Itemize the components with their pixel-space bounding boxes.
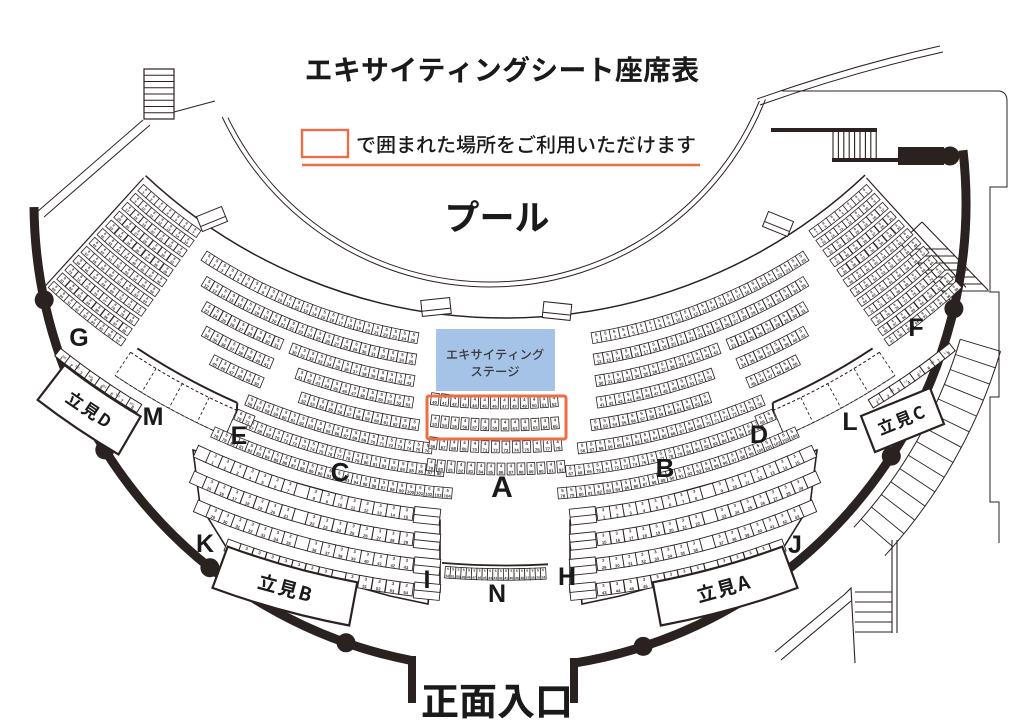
svg-text:100: 100 <box>407 489 415 495</box>
svg-text:5: 5 <box>526 569 528 573</box>
svg-text:5: 5 <box>484 569 486 573</box>
svg-text:48: 48 <box>467 575 471 579</box>
svg-text:76: 76 <box>535 447 541 452</box>
svg-text:73: 73 <box>504 448 509 453</box>
svg-text:46: 46 <box>477 576 481 580</box>
svg-text:B: B <box>656 453 675 483</box>
svg-text:40: 40 <box>510 576 514 580</box>
svg-text:88: 88 <box>519 470 525 475</box>
svg-text:102: 102 <box>425 492 433 498</box>
svg-text:5: 5 <box>489 569 491 573</box>
svg-text:101: 101 <box>416 490 424 496</box>
svg-text:5: 5 <box>542 568 544 572</box>
svg-text:L: L <box>842 408 857 436</box>
svg-text:5: 5 <box>473 568 475 572</box>
svg-text:5: 5 <box>510 569 512 573</box>
svg-text:F: F <box>908 314 923 342</box>
svg-text:51: 51 <box>451 574 455 578</box>
svg-text:D: D <box>750 421 768 449</box>
svg-text:5: 5 <box>468 568 470 572</box>
svg-text:37: 37 <box>526 576 530 580</box>
svg-text:46: 46 <box>492 404 497 409</box>
svg-text:5: 5 <box>463 568 465 572</box>
svg-text:35: 35 <box>536 576 540 580</box>
svg-text:J: J <box>788 531 802 559</box>
svg-text:5: 5 <box>495 569 497 573</box>
svg-text:38: 38 <box>520 576 524 580</box>
svg-text:5: 5 <box>516 569 518 573</box>
svg-text:N: N <box>488 580 506 608</box>
svg-text:M: M <box>143 403 164 431</box>
svg-text:5: 5 <box>452 567 454 571</box>
svg-text:39: 39 <box>515 576 519 580</box>
svg-text:A: A <box>491 471 513 504</box>
svg-text:5: 5 <box>537 568 539 572</box>
svg-text:47: 47 <box>472 576 476 580</box>
svg-text:44: 44 <box>472 403 478 408</box>
svg-text:75: 75 <box>524 447 530 452</box>
svg-text:48: 48 <box>512 404 517 409</box>
svg-text:50: 50 <box>532 403 538 408</box>
svg-text:63: 63 <box>533 425 539 430</box>
svg-text:103: 103 <box>434 492 442 498</box>
svg-text:50: 50 <box>456 575 460 579</box>
svg-text:49: 49 <box>522 404 528 409</box>
svg-text:45: 45 <box>482 404 488 409</box>
svg-text:61: 61 <box>513 426 518 431</box>
svg-text:70: 70 <box>472 447 478 452</box>
svg-text:72: 72 <box>493 448 498 453</box>
svg-text:C: C <box>331 457 350 487</box>
svg-text:5: 5 <box>500 569 502 573</box>
svg-text:71: 71 <box>482 448 488 453</box>
svg-text:5: 5 <box>521 569 523 573</box>
svg-text:K: K <box>196 530 214 558</box>
svg-text:60: 60 <box>503 426 508 431</box>
svg-text:36: 36 <box>531 576 535 580</box>
svg-text:49: 49 <box>461 575 465 579</box>
svg-text:5: 5 <box>505 569 507 573</box>
svg-text:52: 52 <box>445 574 449 578</box>
svg-text:62: 62 <box>523 426 529 431</box>
svg-text:G: G <box>69 324 88 352</box>
svg-text:90: 90 <box>539 469 545 474</box>
svg-text:104: 104 <box>443 493 451 499</box>
svg-text:34: 34 <box>541 575 545 579</box>
svg-text:45: 45 <box>483 576 487 580</box>
svg-text:89: 89 <box>529 469 535 474</box>
svg-text:47: 47 <box>502 404 507 409</box>
svg-text:5: 5 <box>479 569 481 573</box>
svg-text:58: 58 <box>482 426 488 431</box>
svg-text:83: 83 <box>468 469 474 474</box>
svg-text:84: 84 <box>478 469 484 474</box>
svg-text:E: E <box>231 422 248 450</box>
svg-text:H: H <box>558 563 576 591</box>
svg-text:5: 5 <box>532 569 534 573</box>
svg-text:57: 57 <box>472 425 478 430</box>
svg-text:5: 5 <box>457 568 459 572</box>
svg-text:74: 74 <box>514 448 519 453</box>
svg-text:59: 59 <box>492 426 497 431</box>
svg-text:I: I <box>424 566 431 594</box>
